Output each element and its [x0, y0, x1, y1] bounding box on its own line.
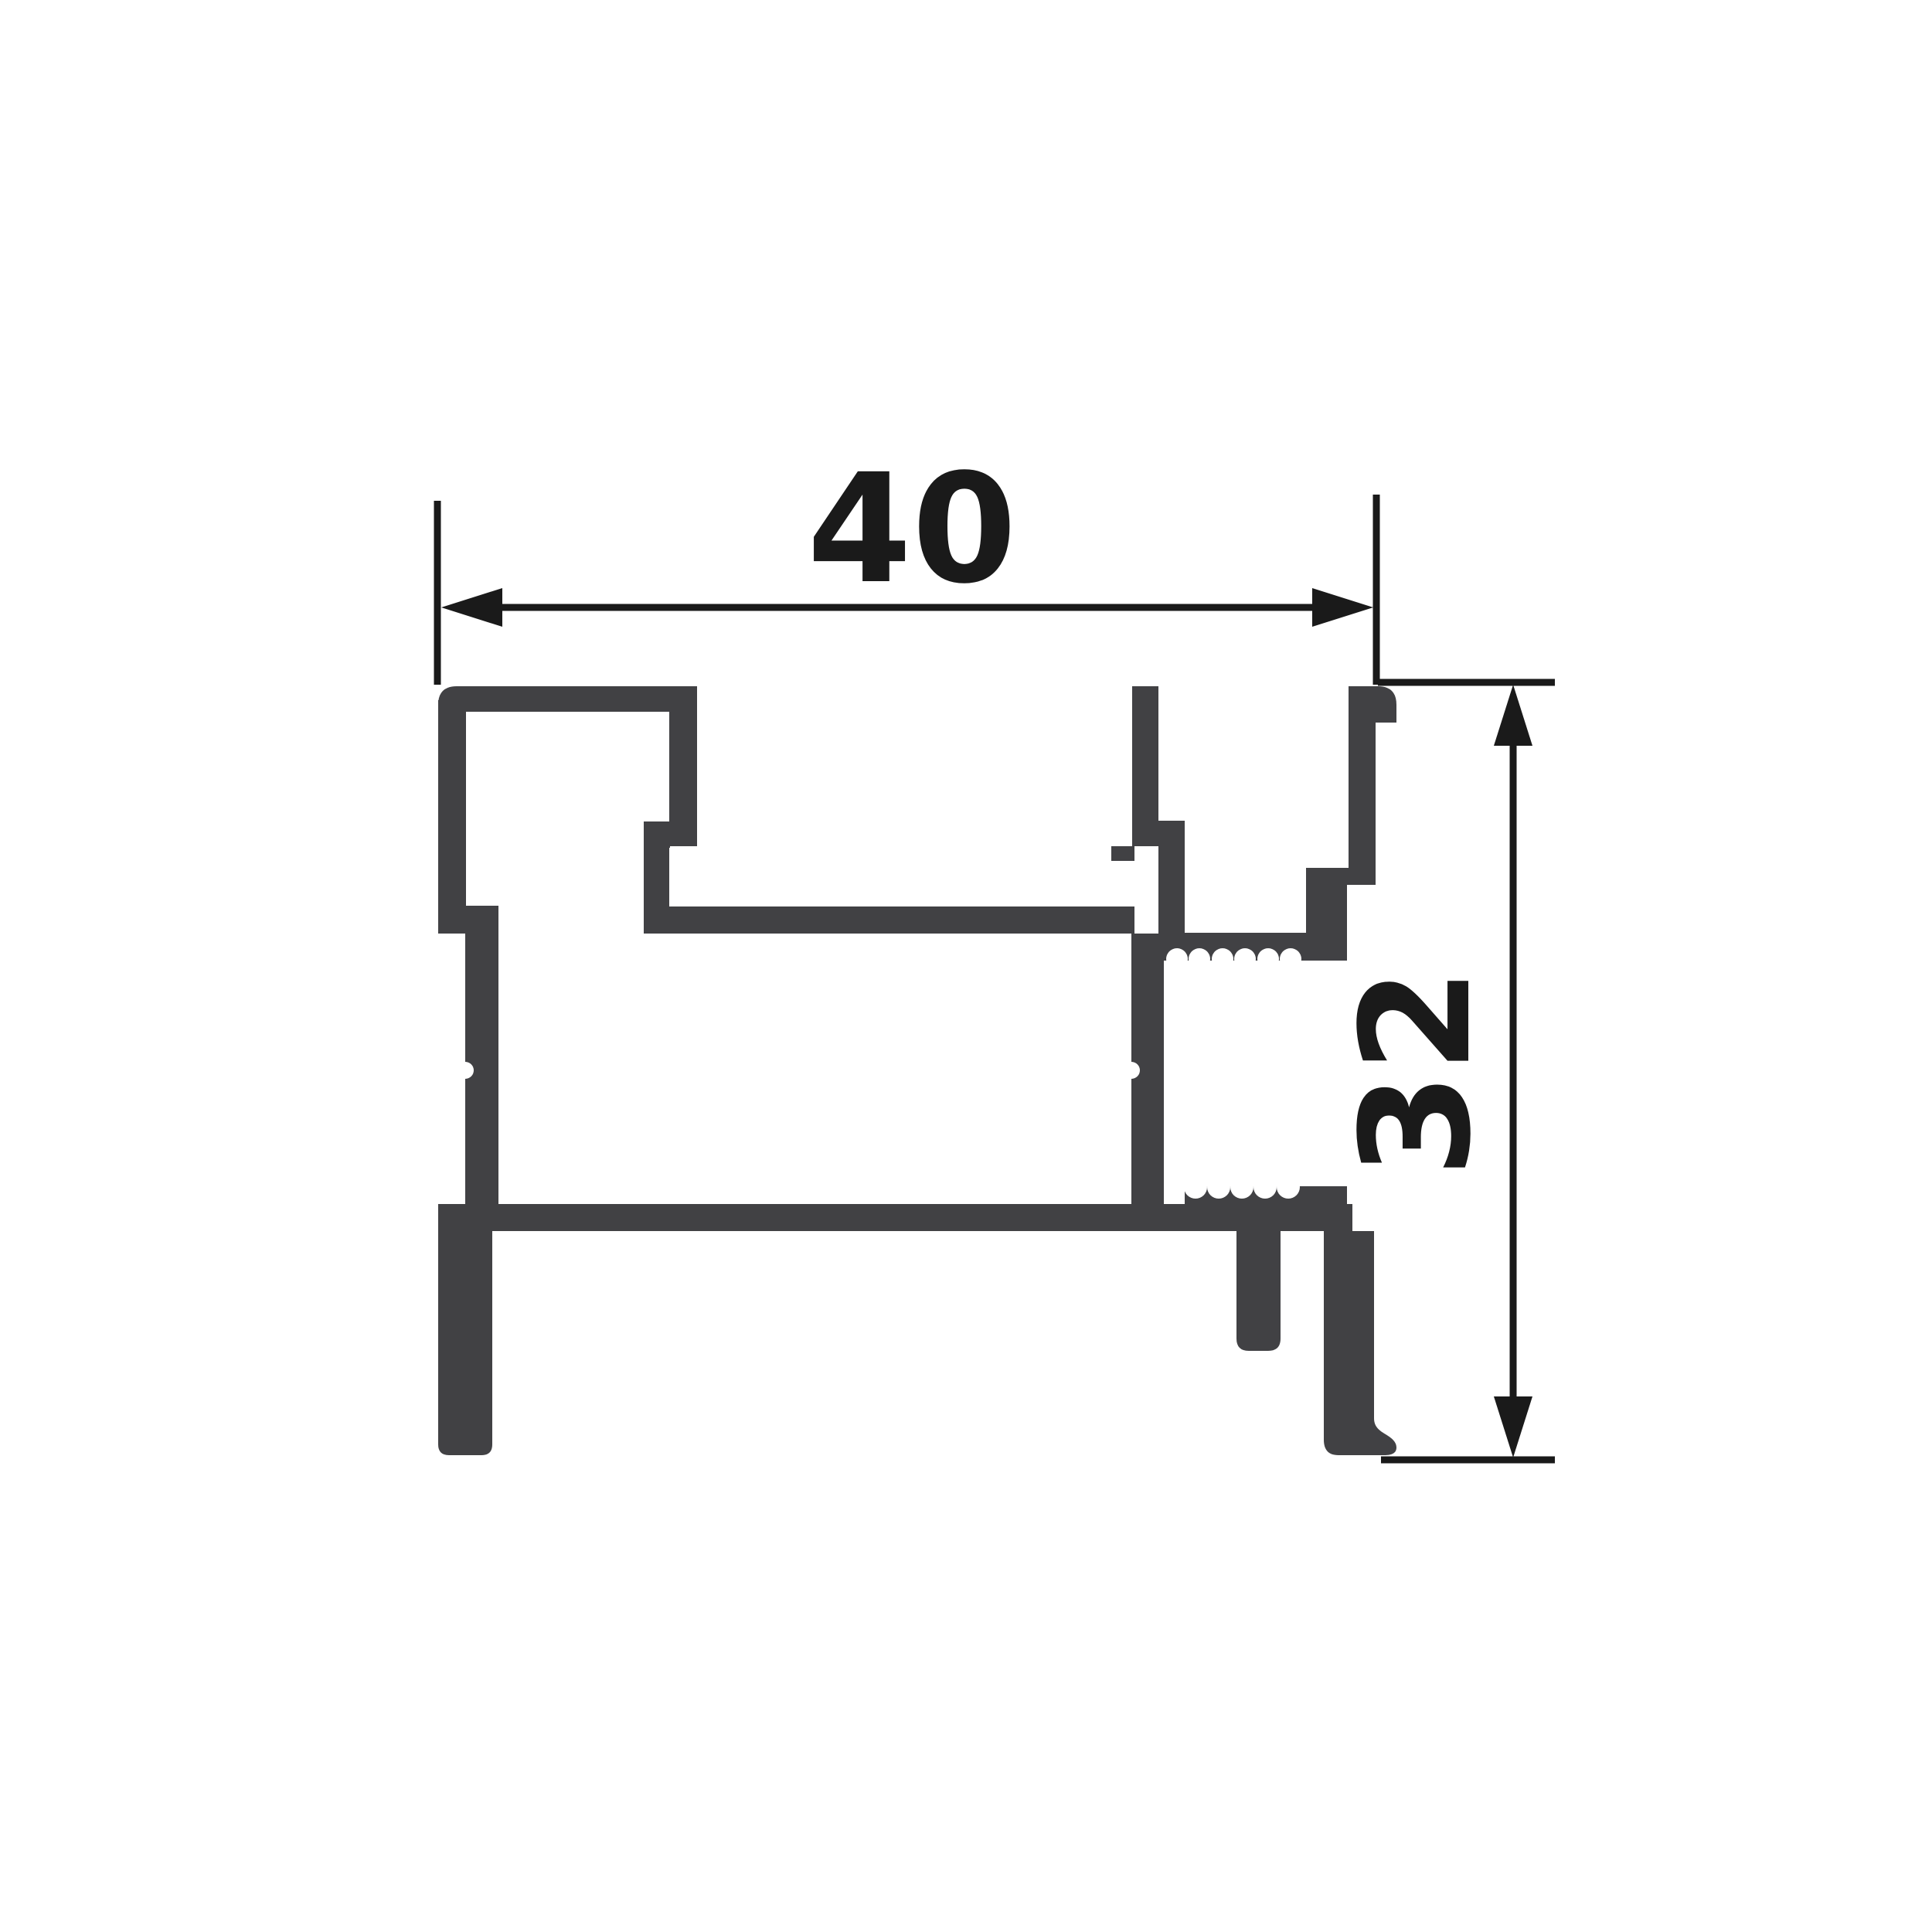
arrow-right-icon: [1312, 588, 1373, 627]
height-dimension-label: 32: [1328, 968, 1504, 1177]
profile-top-left-bar: [438, 686, 697, 712]
serration-bite: [1184, 1175, 1207, 1199]
serration-bite: [1280, 948, 1301, 970]
cavity-left-upper: [466, 712, 669, 821]
cavity-center-mouth: [697, 661, 1132, 846]
notch-left-leg: [457, 1062, 474, 1079]
cavity-left-lower: [466, 821, 644, 906]
serration-bite: [1257, 948, 1279, 970]
profile-web: [644, 906, 1134, 934]
serration-bite: [1230, 1175, 1253, 1199]
profile-right-lip: [1306, 868, 1376, 885]
width-dimension: 40: [437, 441, 1376, 685]
serration-bite: [1189, 948, 1210, 970]
profile-drawing: 40 32: [0, 0, 1932, 1932]
profile-cross-section: [438, 661, 1396, 1471]
serration-bite: [1253, 1175, 1277, 1199]
profile-left-step: [438, 906, 498, 934]
profile-right-foot: [1324, 1231, 1396, 1455]
cavity-center-b: [670, 861, 1132, 906]
serration-bite: [1207, 1175, 1230, 1199]
profile-left-lip: [644, 821, 697, 848]
cavity-box-lower: [1185, 821, 1349, 868]
profile-left-wall: [438, 700, 466, 934]
profile-strip: [1158, 846, 1185, 940]
notch-center-column: [1123, 1062, 1140, 1079]
profile-shelf: [1132, 821, 1185, 848]
notch-web-strip: [1134, 846, 1158, 906]
arrow-down-icon: [1494, 1396, 1532, 1458]
serration-bite: [1212, 948, 1233, 970]
drawing-canvas: 40 32: [0, 0, 1932, 1932]
slot-left: [498, 906, 644, 937]
arrow-up-icon: [1494, 685, 1532, 746]
profile-flange-shoulder: [1314, 1186, 1347, 1206]
profile-right-wall: [1349, 712, 1376, 885]
arrow-left-icon: [441, 588, 502, 627]
profile-left-foot: [438, 1231, 492, 1455]
serration-flange-bites: [1184, 1175, 1300, 1199]
profile-bottom-flange: [438, 1204, 1352, 1231]
cavity-box: [1158, 661, 1349, 821]
profile-inner-wall: [1236, 1231, 1281, 1351]
serration-bite: [1166, 948, 1188, 970]
gap-bottom-right-channel: [1281, 1231, 1324, 1471]
profile-right-stem: [1306, 885, 1347, 961]
width-dimension-label: 40: [807, 441, 1016, 617]
cavity-bottom-center: [498, 934, 1131, 1204]
serration-bite: [1277, 1175, 1300, 1199]
serration-bite: [1234, 948, 1256, 970]
profile-box-lip-hook: [1111, 846, 1134, 861]
